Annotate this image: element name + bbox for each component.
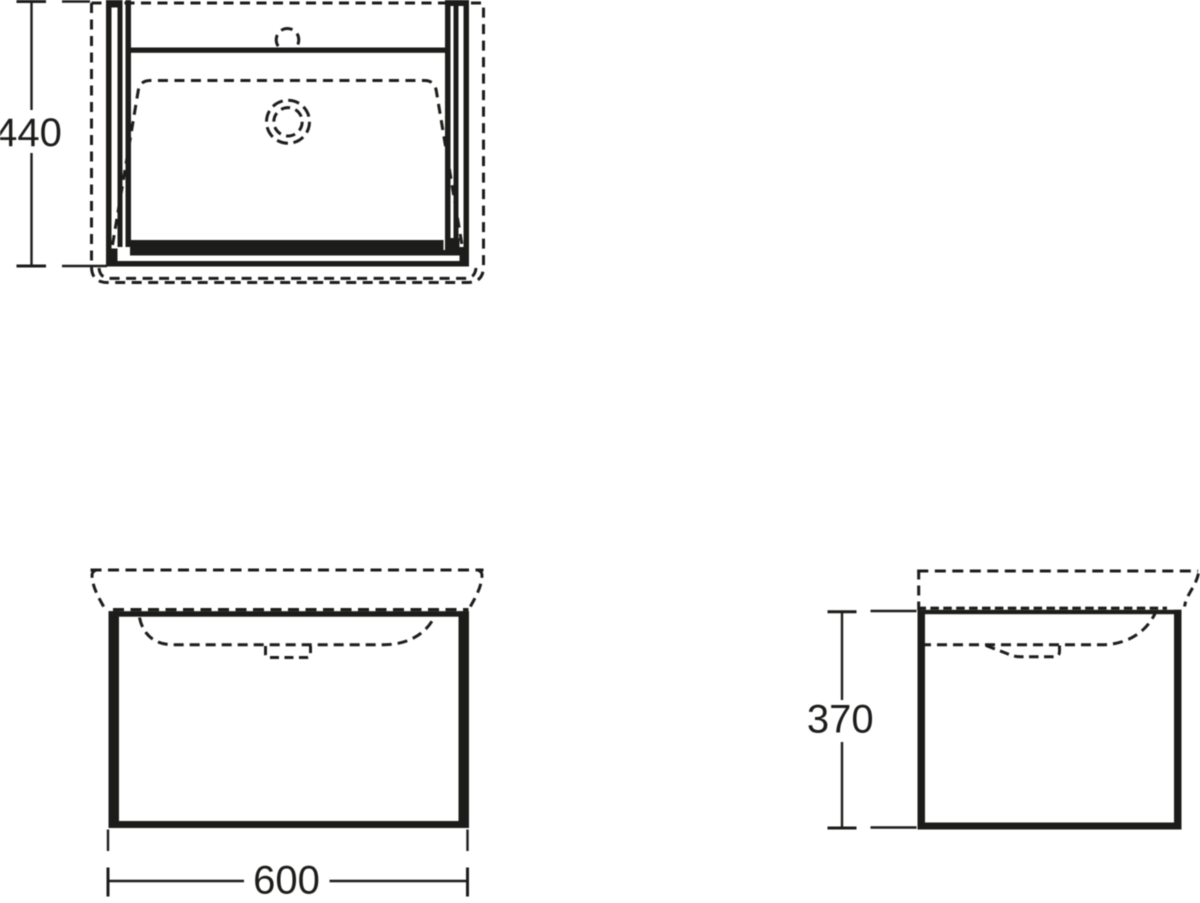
svg-text:440: 440 xyxy=(0,111,62,155)
svg-text:600: 600 xyxy=(253,859,320,903)
svg-text:370: 370 xyxy=(807,698,874,742)
